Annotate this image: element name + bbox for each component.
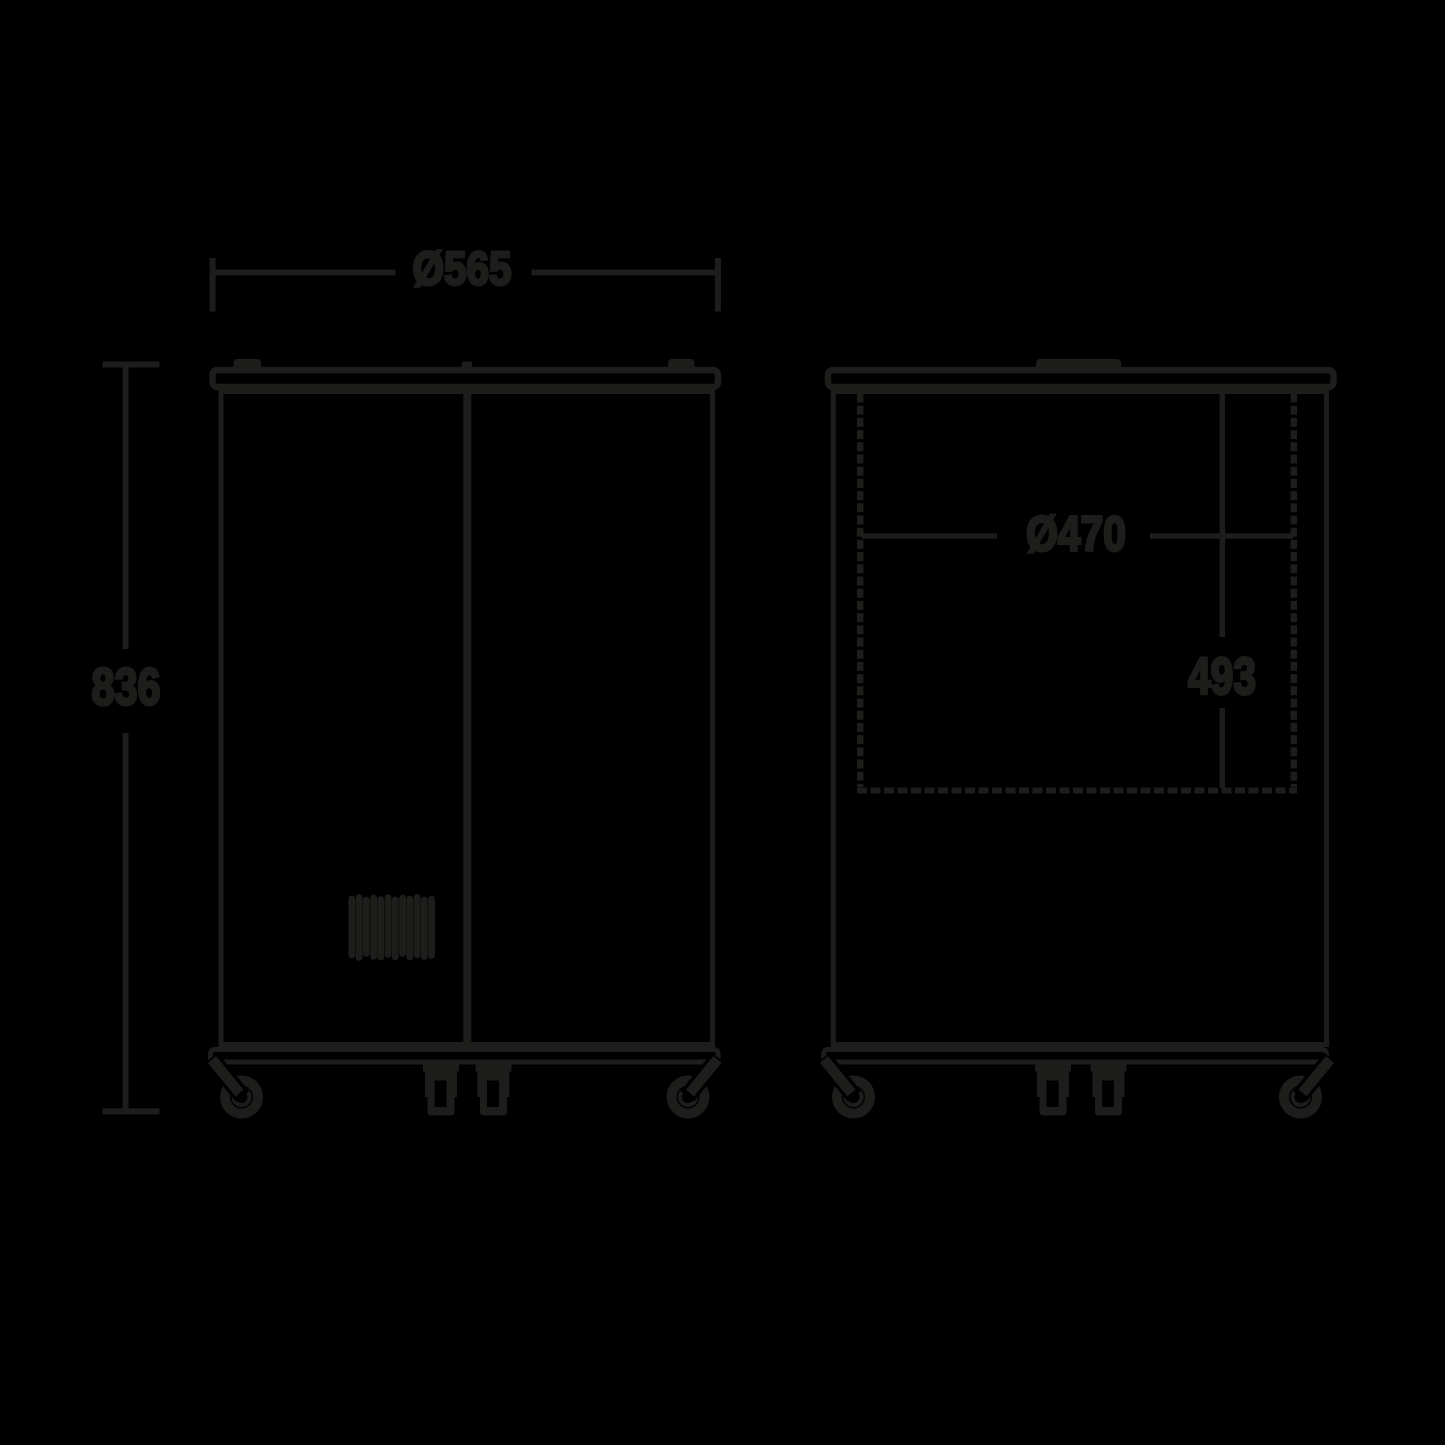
svg-text:493: 493 [1188,648,1256,706]
svg-text:836: 836 [92,659,161,717]
svg-text:Ø470: Ø470 [1026,508,1126,562]
svg-text:Ø565: Ø565 [413,242,512,295]
